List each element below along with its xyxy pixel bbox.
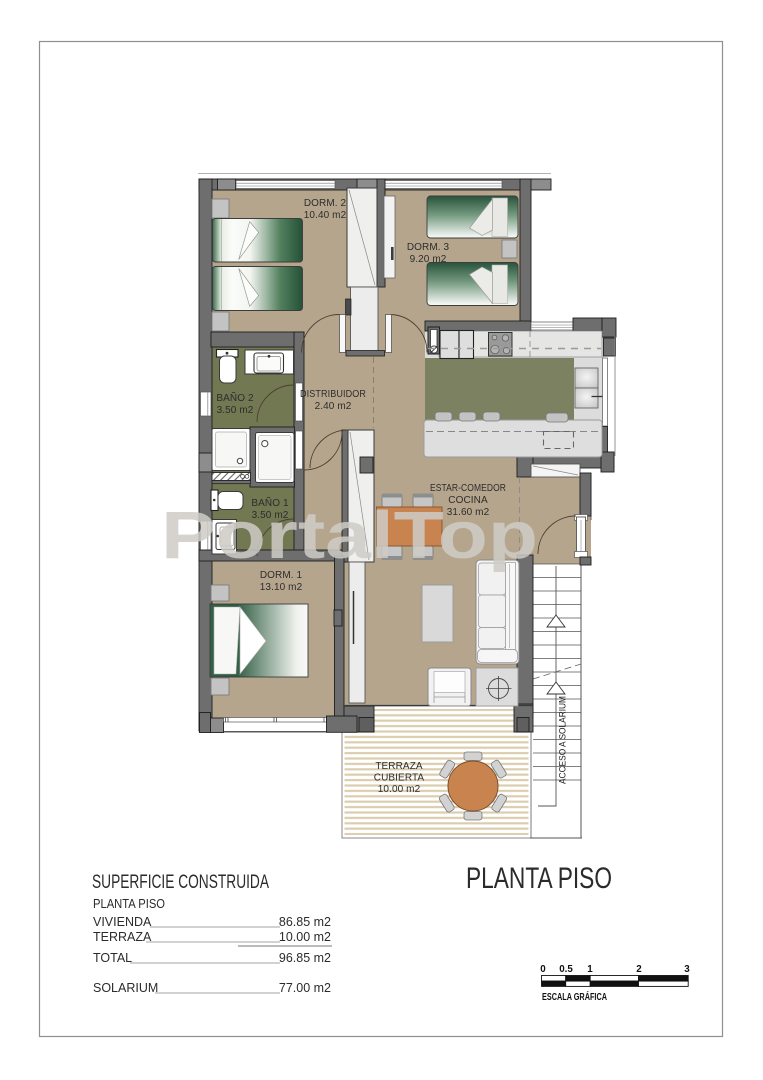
svg-text:1: 1 bbox=[587, 964, 593, 975]
svg-text:9.20 m2: 9.20 m2 bbox=[410, 254, 447, 265]
svg-text:0: 0 bbox=[540, 964, 546, 975]
svg-text:SOLARIUM: SOLARIUM bbox=[93, 981, 158, 995]
svg-text:VIVIENDA: VIVIENDA bbox=[93, 915, 152, 929]
svg-text:77.00 m2: 77.00 m2 bbox=[279, 981, 331, 995]
svg-text:TERRAZA: TERRAZA bbox=[375, 761, 423, 772]
svg-text:96.85 m2: 96.85 m2 bbox=[279, 951, 331, 965]
svg-text:0.5: 0.5 bbox=[559, 964, 573, 975]
svg-text:TERRAZA: TERRAZA bbox=[93, 930, 152, 944]
svg-text:10.00 m2: 10.00 m2 bbox=[279, 930, 331, 944]
svg-text:PLANTA PISO: PLANTA PISO bbox=[93, 897, 165, 911]
svg-text:10.00 m2: 10.00 m2 bbox=[378, 784, 421, 795]
svg-text:TOTAL: TOTAL bbox=[93, 951, 132, 965]
svg-text:PortalTop: PortalTop bbox=[161, 498, 538, 573]
svg-text:PLANTA PISO: PLANTA PISO bbox=[466, 862, 612, 895]
svg-text:BAÑO 2: BAÑO 2 bbox=[216, 391, 254, 404]
svg-text:ACCESO A SOLARIUM: ACCESO A SOLARIUM bbox=[558, 696, 568, 784]
svg-text:DORM. 3: DORM. 3 bbox=[407, 242, 450, 253]
svg-text:2: 2 bbox=[636, 964, 642, 975]
svg-text:86.85 m2: 86.85 m2 bbox=[279, 915, 331, 929]
svg-text:ESTAR-COMEDOR: ESTAR-COMEDOR bbox=[430, 483, 506, 494]
svg-text:10.40 m2: 10.40 m2 bbox=[304, 210, 347, 221]
svg-text:ESCALA GRÁFICA: ESCALA GRÁFICA bbox=[542, 990, 607, 1003]
svg-text:2.40 m2: 2.40 m2 bbox=[315, 401, 352, 412]
svg-text:3: 3 bbox=[684, 964, 690, 975]
svg-text:3.50 m2: 3.50 m2 bbox=[217, 405, 254, 416]
svg-text:DORM. 2: DORM. 2 bbox=[304, 198, 347, 209]
svg-text:13.10 m2: 13.10 m2 bbox=[260, 582, 303, 593]
svg-text:CUBIERTA: CUBIERTA bbox=[374, 773, 425, 784]
svg-text:DISTRIBUIDOR: DISTRIBUIDOR bbox=[300, 389, 366, 400]
svg-text:SUPERFICIE CONSTRUIDA: SUPERFICIE CONSTRUIDA bbox=[92, 872, 269, 893]
